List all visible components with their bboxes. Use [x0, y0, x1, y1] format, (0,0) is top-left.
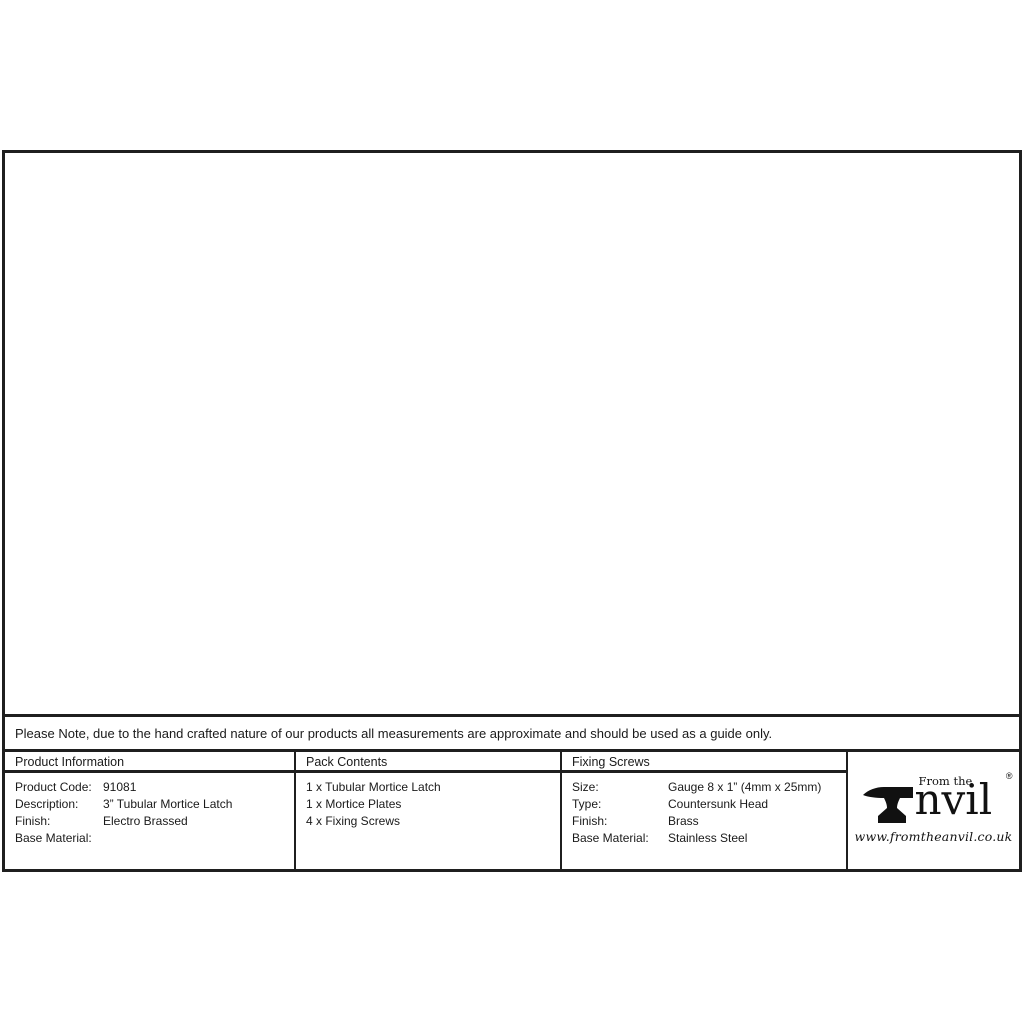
- row-label: Product Code:: [15, 779, 103, 796]
- pack-contents-cell: 1 x Tubular Mortice Latch 1 x Mortice Pl…: [296, 773, 562, 869]
- row-label: Base Material:: [572, 830, 668, 847]
- row-label: Finish:: [15, 813, 103, 830]
- table-row: Base Material: Stainless Steel: [572, 830, 846, 847]
- row-label: Base Material:: [15, 830, 103, 847]
- brand-logo-cell: From the nvil ® www.fromtheanvil.co.uk: [848, 752, 1019, 869]
- pack-contents-header: Pack Contents: [296, 752, 562, 773]
- table-row: Base Material:: [15, 830, 294, 847]
- pack-content-item: 1 x Mortice Plates: [306, 796, 560, 813]
- fixing-screws-header: Fixing Screws: [562, 752, 848, 773]
- product-spec-sheet: 25 57 25 25: [0, 0, 1024, 1024]
- logo-website: www.fromtheanvil.co.uk: [855, 829, 1013, 844]
- row-value: Brass: [668, 813, 699, 830]
- row-label: Type:: [572, 796, 668, 813]
- table-row: Size: Gauge 8 x 1” (4mm x 25mm): [572, 779, 846, 796]
- registered-trademark-symbol: ®: [1006, 771, 1013, 781]
- row-label: Description:: [15, 796, 103, 813]
- product-information-cell: Product Code: 91081 Description: 3” Tubu…: [5, 773, 296, 869]
- pack-content-item: 4 x Fixing Screws: [306, 813, 560, 830]
- row-label: Size:: [572, 779, 668, 796]
- note-text: Please Note, due to the hand crafted nat…: [15, 726, 772, 741]
- sheet-frame: Please Note, due to the hand crafted nat…: [2, 150, 1022, 872]
- info-table: Product Information Pack Contents Fixing…: [5, 749, 1019, 869]
- row-label: Finish:: [572, 813, 668, 830]
- table-row: Product Code: 91081: [15, 779, 294, 796]
- row-value: Countersunk Head: [668, 796, 768, 813]
- product-information-header: Product Information: [5, 752, 296, 773]
- row-value: 91081: [103, 779, 136, 796]
- from-the-anvil-logo: From the nvil ® www.fromtheanvil.co.uk: [855, 773, 1013, 849]
- row-value: Stainless Steel: [668, 830, 747, 847]
- row-value: Gauge 8 x 1” (4mm x 25mm): [668, 779, 821, 796]
- anvil-icon: [861, 785, 915, 825]
- table-row: Description: 3” Tubular Mortice Latch: [15, 796, 294, 813]
- table-row: Finish: Brass: [572, 813, 846, 830]
- pack-content-item: 1 x Tubular Mortice Latch: [306, 779, 560, 796]
- table-row: Finish: Electro Brassed: [15, 813, 294, 830]
- logo-brand-text: nvil: [915, 777, 993, 823]
- note-row: Please Note, due to the hand crafted nat…: [5, 714, 1019, 749]
- table-row: Type: Countersunk Head: [572, 796, 846, 813]
- row-value: Electro Brassed: [103, 813, 188, 830]
- fixing-screws-cell: Size: Gauge 8 x 1” (4mm x 25mm) Type: Co…: [562, 773, 848, 869]
- row-value: 3” Tubular Mortice Latch: [103, 796, 232, 813]
